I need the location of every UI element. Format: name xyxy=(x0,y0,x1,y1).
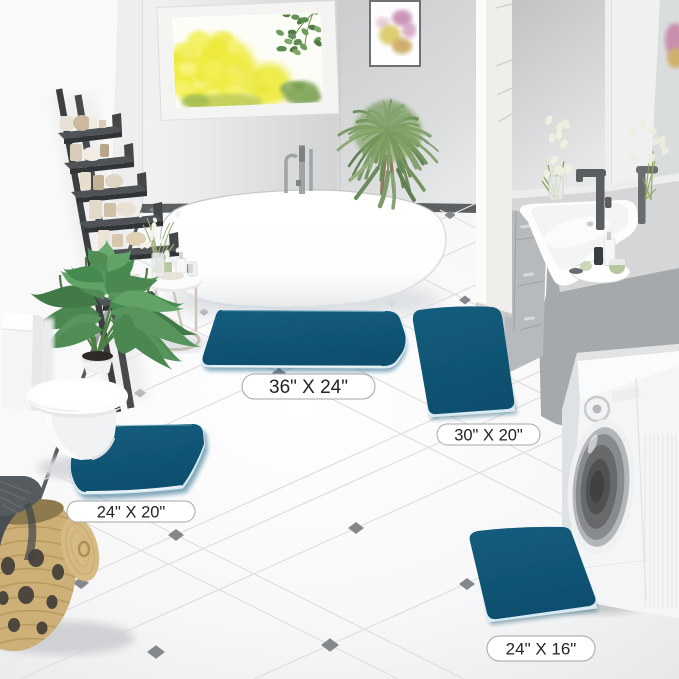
svg-text:36" X 24": 36" X 24" xyxy=(269,377,348,398)
svg-text:24" X 20": 24" X 20" xyxy=(97,503,166,521)
svg-text:30" X 20": 30" X 20" xyxy=(454,426,523,444)
svg-text:24" X 16": 24" X 16" xyxy=(506,639,577,658)
